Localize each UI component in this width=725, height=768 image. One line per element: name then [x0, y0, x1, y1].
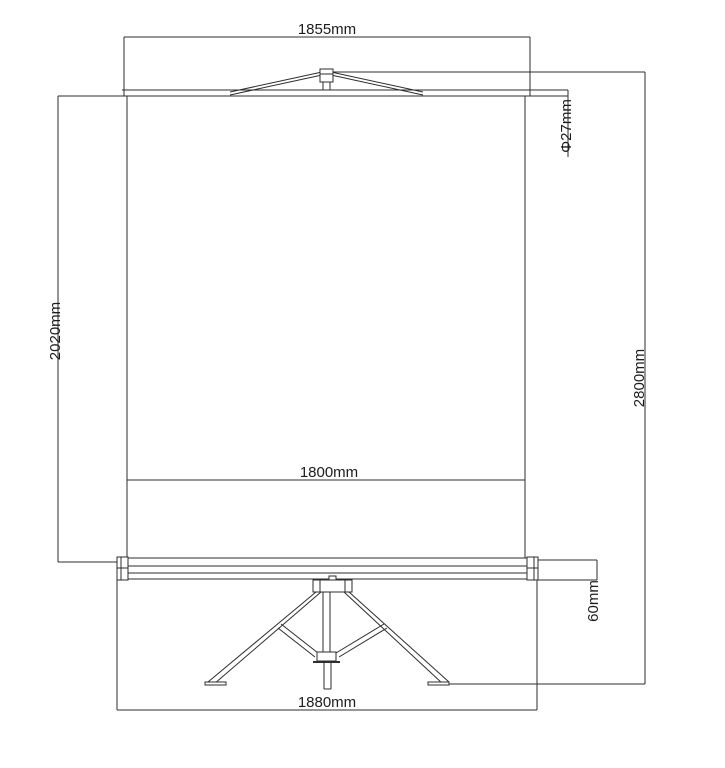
hanger-stem	[323, 82, 330, 90]
tripod-foot-right	[428, 682, 449, 685]
dim-total-height-label: 2800mm	[631, 349, 648, 407]
tripod-brace-right-lower	[339, 628, 387, 657]
hanger-arm-right-outer	[331, 72, 423, 92]
hanger-arm-right-inner	[331, 75, 423, 95]
dim-case-height: 60mm	[538, 560, 602, 622]
tripod-leg-left-inner	[214, 592, 321, 684]
screen-body: 1800mm	[127, 96, 525, 560]
dim-base-width: 1880mm	[117, 580, 537, 711]
dim-case-height-label: 60mm	[585, 580, 602, 622]
technical-drawing-canvas: 1855mm Φ27mm 1800mm	[0, 0, 725, 768]
hanger-bracket	[320, 69, 333, 82]
tripod-top-bracket	[313, 580, 352, 592]
tripod-leg-left-outer	[208, 592, 316, 682]
tripod-brace-left-lower	[278, 628, 315, 657]
tripod-leg-right-outer	[349, 592, 449, 682]
tripod-collar	[317, 652, 336, 661]
hanger-arm-left-outer	[230, 72, 322, 92]
dim-tube-diameter: Φ27mm	[558, 90, 575, 157]
dim-base-width-label: 1880mm	[298, 694, 356, 711]
hanger-assembly	[230, 69, 423, 95]
dim-top-width-label: 1855mm	[298, 21, 356, 38]
tripod-foot-left	[205, 682, 226, 685]
screen-top-slat	[58, 90, 568, 96]
dim-screen-drop-label: 2020mm	[47, 302, 64, 360]
housing-case	[117, 557, 538, 580]
tripod-leg-right-inner	[344, 592, 443, 684]
tripod-brace-right-upper	[336, 624, 384, 653]
screen-dimension-drawing: 1855mm Φ27mm 1800mm	[0, 0, 725, 768]
tripod-brace-left-upper	[281, 624, 318, 653]
dim-tube-diameter-label: Φ27mm	[558, 99, 575, 153]
hanger-arm-left-inner	[230, 75, 322, 95]
dim-screen-drop: 2020mm	[47, 96, 127, 562]
tripod-stand	[205, 576, 449, 689]
dim-viewing-width-label: 1800mm	[300, 464, 358, 481]
tripod-top-nub	[329, 576, 336, 580]
case-body	[128, 558, 527, 579]
